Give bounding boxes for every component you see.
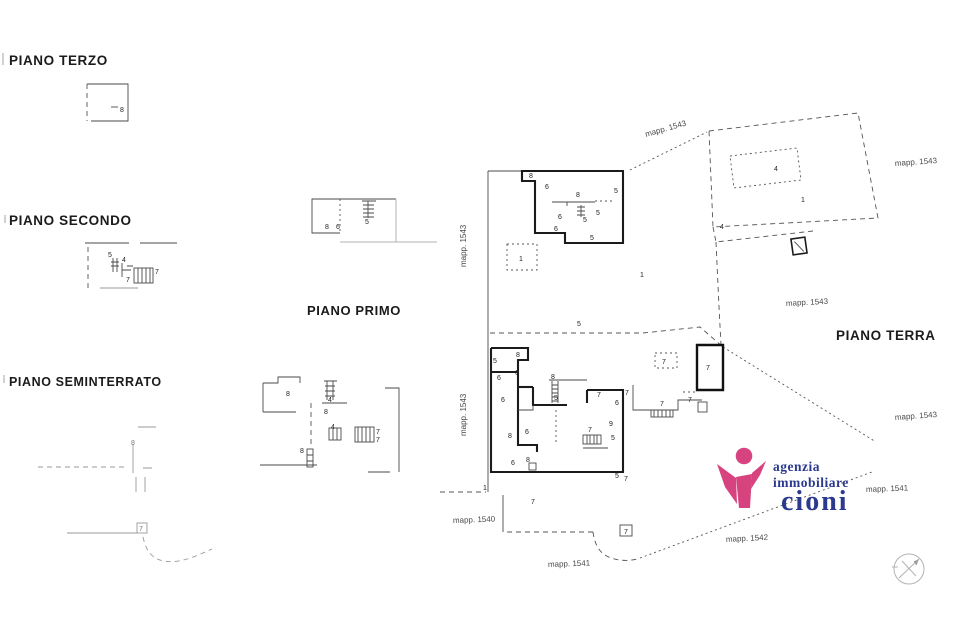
wall <box>552 202 595 206</box>
title-piano-terzo: PIANO TERZO <box>9 53 108 68</box>
plan-piano-terzo: PIANO TERZO 8 <box>9 53 128 121</box>
building-extension: 7 7 7 7 <box>633 345 723 417</box>
plan-piano-seminterrato: PIANO SEMINTERRATO 7 8 <box>9 375 212 562</box>
parcel-label: mapp. 1541 <box>548 559 591 569</box>
room-number: 8 <box>508 433 512 440</box>
room-number: 6 <box>525 429 529 436</box>
building-walls <box>491 348 623 472</box>
room-number: 7 <box>376 437 380 444</box>
stairs-hatch <box>654 410 670 417</box>
room-number: 6 <box>554 226 558 233</box>
compass-arrowhead <box>914 559 920 566</box>
parcel-outline <box>716 242 721 345</box>
title-piano-seminterrato: PIANO SEMINTERRATO <box>9 375 162 389</box>
room-number: 9 <box>609 421 613 428</box>
room-number: 6 <box>558 214 562 221</box>
site-plan-piano-terra: PIANO TERRA 4 1 4 1 8 6 <box>440 113 938 569</box>
logo-figure-body <box>736 474 752 508</box>
plan-piano-secondo: PIANO SECONDO 5 4 7 7 <box>9 213 177 290</box>
room-number: 8 <box>516 352 520 359</box>
parcel-label: mapp. 1543 <box>459 393 468 436</box>
logo-figure-right-arm <box>751 461 766 489</box>
building-walls <box>533 387 567 405</box>
room-number: 7 <box>376 429 380 436</box>
room-number: 4 <box>331 424 335 431</box>
stairs-hatch <box>138 268 150 283</box>
boundary-curve <box>143 537 212 562</box>
title-piano-terra: PIANO TERRA <box>836 328 936 343</box>
room-number: 5 <box>590 235 594 242</box>
wall-shadow <box>340 199 437 242</box>
parcel-outline <box>713 227 813 242</box>
room-number: 5 <box>493 358 497 365</box>
solid-room-walls <box>697 345 723 390</box>
room-number: 5 <box>577 321 581 328</box>
room-number: 4 <box>774 166 778 173</box>
room-number: 5 <box>614 188 618 195</box>
room-number: 8 <box>300 448 304 455</box>
room-number: 7 <box>624 529 628 536</box>
lower-building: 5 8 6 6 6 8 5 6 8 7 6 9 7 5 6 8 5 7 7 <box>491 348 629 483</box>
logo-text-agenzia: agenzia <box>773 459 820 474</box>
plan-piano-primo-annex: 8 4 8 8 7 7 4 <box>260 377 399 472</box>
room-dashed <box>655 353 677 368</box>
parcel-outline <box>709 113 878 227</box>
stairs-hatch <box>583 435 608 448</box>
floorplan-drawing: PIANO TERZO 8 PIANO SECONDO 5 4 7 7 PIAN… <box>0 0 964 628</box>
stairs-hatch <box>358 427 370 442</box>
room-number: 7 <box>126 277 130 284</box>
room-number: 4 <box>328 397 332 404</box>
small-structure <box>791 237 807 255</box>
parcel-label: mapp. 1543 <box>459 224 468 267</box>
room-number: 7 <box>625 390 629 397</box>
logo-text-cioni: cioni <box>781 486 849 517</box>
small-structure-mark <box>794 240 803 252</box>
room-number: 4 <box>122 257 126 264</box>
room-outline <box>263 377 300 412</box>
scan-artifact <box>3 53 5 383</box>
stairs-hatch <box>307 455 313 461</box>
room-number: 1 <box>640 272 644 279</box>
room-number: 8 <box>526 457 530 464</box>
room-number: 4 <box>720 224 724 231</box>
room-number: 5 <box>554 395 558 402</box>
room-number: 5 <box>108 252 112 259</box>
stairs <box>111 258 119 272</box>
agency-logo: agenzia immobiliare cioni <box>717 448 849 517</box>
logo-figure-left-arm <box>717 464 737 504</box>
parcel-label: mapp. 1541 <box>866 484 909 494</box>
room-number: 5 <box>365 219 369 226</box>
parcel-label: mapp. 1543 <box>895 156 938 168</box>
room-number: 6 <box>545 184 549 191</box>
room-number: 8 <box>286 391 290 398</box>
building-walls <box>522 171 623 243</box>
boundary-dashed <box>490 327 723 347</box>
parcel-label: mapp. 1543 <box>644 118 688 138</box>
room-number: 1 <box>519 256 523 263</box>
parcel-label: mapp. 1543 <box>895 410 938 422</box>
room-number: 7 <box>688 397 692 404</box>
room-number: 6 <box>515 370 519 377</box>
room-number: 6 <box>511 460 515 467</box>
room-number: 7 <box>597 392 601 399</box>
parcel-label: mapp. 1540 <box>453 515 496 525</box>
room-number: 5 <box>611 435 615 442</box>
room-number: 1 <box>483 485 487 492</box>
logo-figure-head <box>736 448 753 465</box>
stairs <box>577 205 585 217</box>
room-number: 7 <box>155 269 159 276</box>
room-number: 8 <box>529 173 533 180</box>
room-number: 5 <box>615 473 619 480</box>
room-number: 6 <box>497 375 501 382</box>
room-number: 6 <box>615 400 619 407</box>
upper-building: 8 6 8 5 5 5 6 6 5 1 5 <box>507 171 623 328</box>
floorplan-page: PIANO TERZO 8 PIANO SECONDO 5 4 7 7 PIAN… <box>0 0 964 628</box>
room-number: 8 <box>324 409 328 416</box>
north-compass <box>892 554 924 584</box>
room-number: 8 <box>325 224 329 231</box>
boundary-dotted <box>723 347 876 442</box>
room-number: 6 <box>501 397 505 404</box>
room-number: 8 <box>551 374 555 381</box>
room-number: 7 <box>660 401 664 408</box>
small-box <box>698 402 707 412</box>
room-number: 8 <box>120 107 124 114</box>
room-number: 7 <box>139 526 143 533</box>
small-box <box>529 463 536 470</box>
room-outline <box>87 84 128 121</box>
building-footprint-dashed <box>730 148 801 188</box>
room-number: 6 <box>336 224 340 231</box>
room-number: 7 <box>662 359 666 366</box>
parcel-label: mapp. 1543 <box>786 297 829 308</box>
title-piano-primo: PIANO PRIMO <box>307 303 401 318</box>
stairs-ladder <box>307 449 313 467</box>
parcel-label: mapp. 1542 <box>726 533 769 544</box>
wall <box>67 427 156 533</box>
boundary-dotted <box>630 132 707 170</box>
stairs <box>362 201 376 218</box>
room-number: 7 <box>531 499 535 506</box>
room-outline <box>368 388 399 472</box>
room-number: 7 <box>624 476 628 483</box>
title-piano-secondo: PIANO SECONDO <box>9 213 132 228</box>
room-number: 5 <box>596 210 600 217</box>
room-number: 8 <box>576 192 580 199</box>
stairs-box <box>583 435 601 444</box>
room-number: 1 <box>801 197 805 204</box>
room-number: 7 <box>588 427 592 434</box>
room-number: 7 <box>706 365 710 372</box>
plan-piano-primo: PIANO PRIMO 8 6 5 <box>307 199 437 318</box>
room-number: 8 <box>131 440 135 447</box>
wall-detail <box>122 263 133 277</box>
room-number: 5 <box>583 217 587 224</box>
